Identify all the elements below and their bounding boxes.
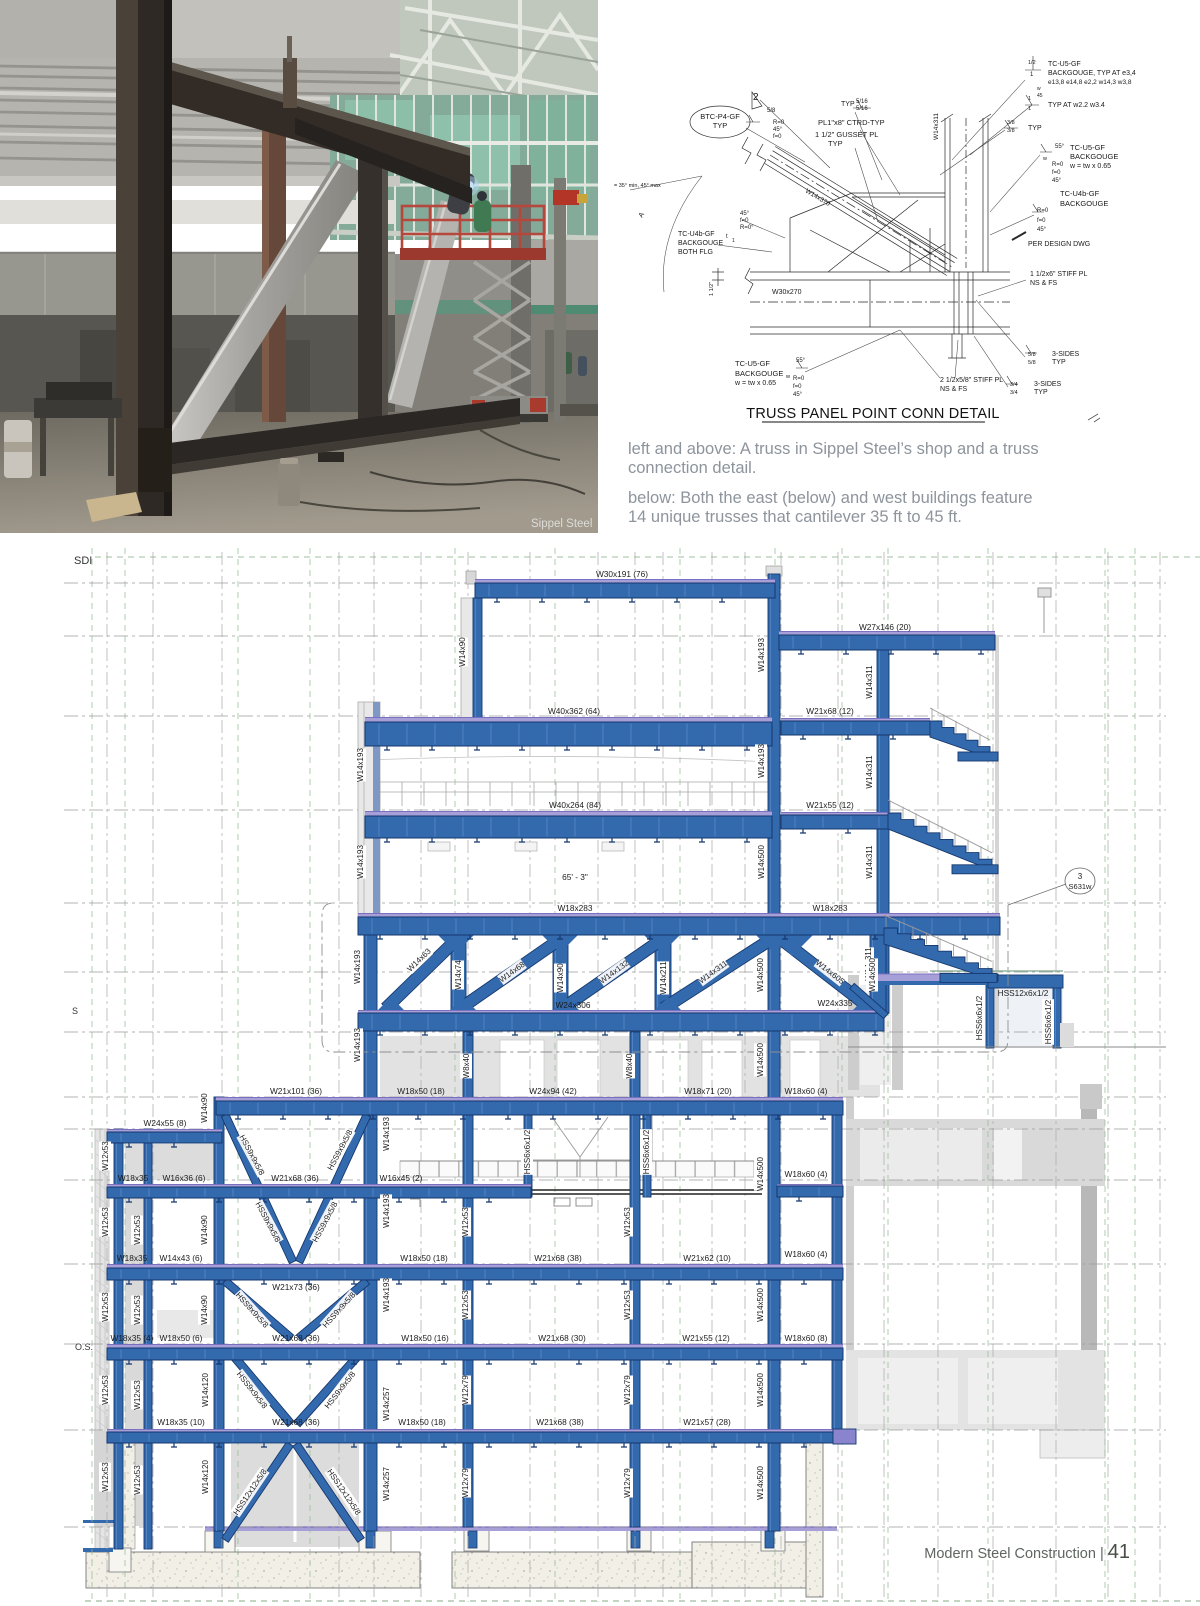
svg-text:1: 1 bbox=[1028, 106, 1031, 112]
svg-text:W18x60 (4): W18x60 (4) bbox=[785, 1086, 828, 1096]
svg-text:W24x55 (8): W24x55 (8) bbox=[144, 1118, 187, 1128]
svg-text:W18x50 (16): W18x50 (16) bbox=[401, 1333, 449, 1343]
svg-text:BACKGOUGE: BACKGOUGE bbox=[735, 369, 783, 378]
svg-text:HSS12x6x1/2: HSS12x6x1/2 bbox=[998, 988, 1049, 998]
svg-text:W12x53: W12x53 bbox=[101, 1141, 110, 1171]
svg-text:W21x73 (36): W21x73 (36) bbox=[272, 1282, 320, 1292]
svg-text:W12x79: W12x79 bbox=[461, 1375, 470, 1405]
svg-text:3-SIDES: 3-SIDES bbox=[1034, 381, 1062, 388]
svg-text:W16x36 (6): W16x36 (6) bbox=[163, 1173, 206, 1183]
svg-text:f=0: f=0 bbox=[1052, 170, 1061, 176]
svg-text:W14x193: W14x193 bbox=[757, 744, 766, 778]
svg-text:W12x53: W12x53 bbox=[461, 1207, 470, 1237]
svg-text:W21x62 (10): W21x62 (10) bbox=[683, 1253, 731, 1263]
svg-text:HSS6x6x1/2: HSS6x6x1/2 bbox=[1044, 999, 1053, 1044]
svg-text:PER DESIGN DWG: PER DESIGN DWG bbox=[1028, 241, 1090, 248]
svg-text:W14x193: W14x193 bbox=[356, 845, 365, 879]
svg-text:TYP: TYP bbox=[1034, 389, 1048, 396]
svg-text:BTC-P4-GF: BTC-P4-GF bbox=[700, 112, 740, 121]
svg-text:W30x270: W30x270 bbox=[772, 289, 802, 296]
svg-text:O.S.: O.S. bbox=[75, 1342, 93, 1352]
svg-text:1: 1 bbox=[732, 238, 735, 244]
svg-text:f=0: f=0 bbox=[740, 218, 749, 224]
svg-text:TC-U5-GF: TC-U5-GF bbox=[1048, 61, 1081, 68]
svg-text:HSS6x6x1/2: HSS6x6x1/2 bbox=[975, 995, 984, 1040]
svg-text:W18x35: W18x35 bbox=[117, 1253, 148, 1263]
svg-text:BACKGOUGE, TYP AT e3,4: BACKGOUGE, TYP AT e3,4 bbox=[1048, 70, 1136, 77]
svg-text:BACKGOUGE: BACKGOUGE bbox=[1070, 152, 1118, 161]
svg-text:W18x35 (10): W18x35 (10) bbox=[157, 1417, 205, 1427]
svg-text:R=0: R=0 bbox=[1037, 208, 1049, 214]
svg-text:W12x53: W12x53 bbox=[461, 1290, 470, 1320]
svg-text:3/4: 3/4 bbox=[1010, 390, 1018, 396]
svg-text:t: t bbox=[726, 234, 728, 240]
svg-text:3/8: 3/8 bbox=[1007, 120, 1015, 126]
svg-text:W14x193: W14x193 bbox=[382, 1278, 391, 1312]
svg-text:TC-U4b-GF: TC-U4b-GF bbox=[1060, 189, 1100, 198]
svg-text:BOTH FLG: BOTH FLG bbox=[678, 249, 713, 256]
svg-text:W14x257: W14x257 bbox=[382, 1387, 391, 1421]
svg-text:55°: 55° bbox=[796, 358, 806, 364]
svg-text:W14x500: W14x500 bbox=[868, 958, 877, 992]
svg-text:W40x264 (84): W40x264 (84) bbox=[549, 800, 601, 810]
svg-text:TYP: TYP bbox=[828, 139, 843, 148]
svg-text:R=0: R=0 bbox=[1052, 162, 1064, 168]
svg-text:W14x193: W14x193 bbox=[356, 748, 365, 782]
svg-text:W16x45 (2): W16x45 (2) bbox=[380, 1173, 423, 1183]
svg-text:1 1/2" GUSSET PL: 1 1/2" GUSSET PL bbox=[815, 130, 878, 139]
svg-text:W14x193: W14x193 bbox=[353, 1028, 362, 1062]
svg-text:f=0: f=0 bbox=[1037, 218, 1046, 224]
svg-text:W12x79: W12x79 bbox=[461, 1468, 470, 1498]
svg-text:W14x90: W14x90 bbox=[556, 963, 565, 993]
svg-text:W21x68 (38): W21x68 (38) bbox=[536, 1417, 584, 1427]
svg-text:5/8: 5/8 bbox=[1028, 360, 1036, 366]
svg-text:W12x79: W12x79 bbox=[623, 1375, 632, 1405]
svg-text:W12x53: W12x53 bbox=[623, 1290, 632, 1320]
svg-text:45°: 45° bbox=[740, 211, 750, 217]
svg-text:W21x68 (38): W21x68 (38) bbox=[534, 1253, 582, 1263]
svg-text:TYP: TYP bbox=[841, 101, 855, 108]
svg-text:TYP AT w2.2 w3.4: TYP AT w2.2 w3.4 bbox=[1048, 102, 1105, 109]
svg-text:1: 1 bbox=[1030, 72, 1034, 78]
svg-text:NS & FS: NS & FS bbox=[940, 386, 968, 393]
svg-text:w: w bbox=[785, 374, 790, 380]
svg-text:SDI: SDI bbox=[74, 555, 92, 567]
svg-text:W14x311: W14x311 bbox=[933, 113, 940, 140]
svg-text:3/4: 3/4 bbox=[1010, 382, 1018, 388]
svg-text:W14x311: W14x311 bbox=[865, 665, 874, 699]
svg-text:W12x53: W12x53 bbox=[133, 1295, 142, 1325]
svg-text:W14x370: W14x370 bbox=[804, 188, 831, 208]
svg-text:f=0: f=0 bbox=[773, 134, 782, 140]
svg-text:W30x191 (76): W30x191 (76) bbox=[596, 569, 648, 579]
svg-text:BACKGOUGE: BACKGOUGE bbox=[1060, 199, 1108, 208]
svg-text:W18x35: W18x35 bbox=[118, 1173, 149, 1183]
svg-text:W14x120: W14x120 bbox=[201, 1373, 210, 1407]
svg-text:W14x193: W14x193 bbox=[382, 1194, 391, 1228]
svg-text:W14x90: W14x90 bbox=[200, 1295, 209, 1325]
svg-text:1: 1 bbox=[1028, 96, 1031, 102]
svg-text:W21x55 (12): W21x55 (12) bbox=[682, 1333, 730, 1343]
svg-text:W12x53: W12x53 bbox=[623, 1207, 632, 1237]
svg-text:W14x500: W14x500 bbox=[756, 958, 765, 992]
svg-text:W24x306: W24x306 bbox=[555, 1000, 590, 1010]
svg-text:TYP: TYP bbox=[1028, 125, 1042, 132]
svg-text:W14x74: W14x74 bbox=[454, 960, 463, 990]
svg-text:5/16: 5/16 bbox=[856, 106, 868, 112]
svg-text:BACKGOUGE: BACKGOUGE bbox=[678, 240, 723, 247]
svg-text:W18x71 (20): W18x71 (20) bbox=[684, 1086, 732, 1096]
svg-text:W12x53: W12x53 bbox=[101, 1292, 110, 1322]
svg-text:W14x500: W14x500 bbox=[756, 1157, 765, 1191]
svg-text:W14x90: W14x90 bbox=[200, 1093, 209, 1123]
svg-text:W12x53: W12x53 bbox=[101, 1375, 110, 1405]
svg-text:45°: 45° bbox=[793, 392, 803, 398]
svg-text:45: 45 bbox=[1037, 93, 1043, 99]
svg-text:W14x257: W14x257 bbox=[382, 1467, 391, 1501]
svg-text:R=0°: R=0° bbox=[740, 225, 754, 231]
svg-text:S631w: S631w bbox=[1069, 882, 1093, 891]
svg-text:3-SIDES: 3-SIDES bbox=[1052, 351, 1080, 358]
svg-text:W14x500: W14x500 bbox=[756, 1466, 765, 1500]
svg-text:45°: 45° bbox=[1037, 227, 1047, 233]
svg-text:w: w bbox=[1042, 156, 1047, 162]
svg-text:W18x283: W18x283 bbox=[557, 903, 592, 913]
svg-text:HSS6x6x1/2: HSS6x6x1/2 bbox=[523, 1129, 532, 1174]
svg-text:W18x50 (18): W18x50 (18) bbox=[397, 1086, 445, 1096]
svg-text:TC-U5-GF: TC-U5-GF bbox=[1070, 143, 1105, 152]
svg-text:1 1/2": 1 1/2" bbox=[709, 282, 715, 296]
svg-text:= 35° min, 45° max: = 35° min, 45° max bbox=[614, 183, 661, 189]
svg-text:A: A bbox=[638, 211, 647, 219]
svg-text:TRUSS PANEL POINT CONN DETAIL: TRUSS PANEL POINT CONN DETAIL bbox=[746, 406, 999, 422]
svg-text:W18x283: W18x283 bbox=[812, 903, 847, 913]
svg-text:W27x146 (20): W27x146 (20) bbox=[859, 622, 911, 632]
svg-text:W21x68 (36): W21x68 (36) bbox=[272, 1333, 320, 1343]
svg-text:TC-U4b-GF: TC-U4b-GF bbox=[678, 231, 715, 238]
svg-text:HSS6x6x1/2: HSS6x6x1/2 bbox=[642, 1129, 651, 1174]
svg-text:W24x335: W24x335 bbox=[817, 998, 852, 1008]
svg-text:W14x193: W14x193 bbox=[757, 638, 766, 672]
svg-text:W21x68 (36): W21x68 (36) bbox=[271, 1173, 319, 1183]
svg-text:TYP: TYP bbox=[1052, 359, 1066, 366]
svg-text:W18x50 (18): W18x50 (18) bbox=[398, 1417, 446, 1427]
svg-text:W8x40: W8x40 bbox=[462, 1053, 471, 1078]
svg-text:W21x55 (12): W21x55 (12) bbox=[806, 800, 854, 810]
svg-text:W14x500: W14x500 bbox=[756, 1288, 765, 1322]
svg-text:W21x101 (36): W21x101 (36) bbox=[270, 1086, 322, 1096]
svg-text:Sippel Steel: Sippel Steel bbox=[531, 518, 592, 530]
svg-text:e13,8 e14,8 e2,2 w14,3 w3,8: e13,8 e14,8 e2,2 w14,3 w3,8 bbox=[1048, 79, 1132, 86]
svg-text:W18x60 (8): W18x60 (8) bbox=[785, 1333, 828, 1343]
svg-text:W14x90: W14x90 bbox=[458, 637, 467, 667]
svg-text:W21x68 (36): W21x68 (36) bbox=[272, 1417, 320, 1427]
svg-text:1/2: 1/2 bbox=[1028, 60, 1036, 66]
svg-text:W12x53: W12x53 bbox=[101, 1462, 110, 1492]
svg-text:NS & FS: NS & FS bbox=[1030, 280, 1058, 287]
svg-text:TC-U5-GF: TC-U5-GF bbox=[735, 359, 770, 368]
svg-text:f=0: f=0 bbox=[793, 384, 802, 390]
svg-text:W12x53: W12x53 bbox=[133, 1465, 142, 1495]
svg-text:5/8: 5/8 bbox=[1028, 352, 1036, 358]
svg-text:W8x40: W8x40 bbox=[625, 1053, 634, 1078]
svg-text:W18x35 (4): W18x35 (4) bbox=[111, 1333, 154, 1343]
svg-text:2: 2 bbox=[753, 92, 759, 103]
svg-text:2 1/2x5/8" STIFF PL: 2 1/2x5/8" STIFF PL bbox=[940, 377, 1003, 384]
svg-text:W14x311: W14x311 bbox=[865, 845, 874, 879]
svg-text:W14x193: W14x193 bbox=[382, 1117, 391, 1151]
svg-text:W14x311: W14x311 bbox=[865, 755, 874, 789]
svg-text:W12x79: W12x79 bbox=[623, 1468, 632, 1498]
svg-text:W14x90: W14x90 bbox=[200, 1215, 209, 1245]
svg-text:W12x53: W12x53 bbox=[133, 1215, 142, 1245]
svg-text:W18x60 (4): W18x60 (4) bbox=[785, 1249, 828, 1259]
svg-text:W21x57 (28): W21x57 (28) bbox=[683, 1417, 731, 1427]
svg-text:3/8: 3/8 bbox=[1007, 128, 1015, 134]
svg-text:R=0: R=0 bbox=[793, 376, 805, 382]
svg-text:W12x53: W12x53 bbox=[101, 1207, 110, 1237]
svg-text:w = tw x 0.65: w = tw x 0.65 bbox=[1069, 163, 1111, 170]
svg-text:1 1/2x6" STIFF PL: 1 1/2x6" STIFF PL bbox=[1030, 271, 1087, 278]
svg-text:W21x68 (30): W21x68 (30) bbox=[538, 1333, 586, 1343]
svg-text:R=0: R=0 bbox=[773, 120, 785, 126]
svg-text:W14x193: W14x193 bbox=[353, 950, 362, 984]
svg-text:W14x43 (6): W14x43 (6) bbox=[160, 1253, 203, 1263]
svg-text:W18x50 (6): W18x50 (6) bbox=[160, 1333, 203, 1343]
svg-text:W21x68 (12): W21x68 (12) bbox=[806, 706, 854, 716]
svg-text:W14x500: W14x500 bbox=[757, 845, 766, 879]
svg-text:W12x53: W12x53 bbox=[133, 1380, 142, 1410]
svg-text:45°: 45° bbox=[773, 127, 783, 133]
svg-text:S: S bbox=[72, 1006, 78, 1016]
svg-text:W14x120: W14x120 bbox=[201, 1460, 210, 1494]
svg-text:W18x60 (4): W18x60 (4) bbox=[785, 1169, 828, 1179]
svg-text:W14x500: W14x500 bbox=[756, 1043, 765, 1077]
svg-text:45°: 45° bbox=[1052, 178, 1062, 184]
svg-text:TYP: TYP bbox=[713, 121, 728, 130]
svg-text:3: 3 bbox=[1078, 872, 1083, 881]
svg-text:5/8: 5/8 bbox=[767, 108, 776, 114]
svg-text:55°: 55° bbox=[1055, 144, 1065, 150]
svg-text:W14x211: W14x211 bbox=[659, 961, 668, 995]
svg-text:W24x94 (42): W24x94 (42) bbox=[529, 1086, 577, 1096]
svg-text:5/16: 5/16 bbox=[856, 99, 868, 105]
svg-text:PL1"x8" CTRD-TYP: PL1"x8" CTRD-TYP bbox=[818, 118, 885, 127]
svg-text:W40x362 (64): W40x362 (64) bbox=[548, 706, 600, 716]
svg-text:W14x500: W14x500 bbox=[756, 1373, 765, 1407]
svg-text:65' - 3": 65' - 3" bbox=[562, 872, 588, 882]
svg-text:W18x50 (18): W18x50 (18) bbox=[400, 1253, 448, 1263]
svg-text:w: w bbox=[1037, 86, 1041, 92]
svg-text:w = tw x 0.65: w = tw x 0.65 bbox=[734, 380, 776, 387]
